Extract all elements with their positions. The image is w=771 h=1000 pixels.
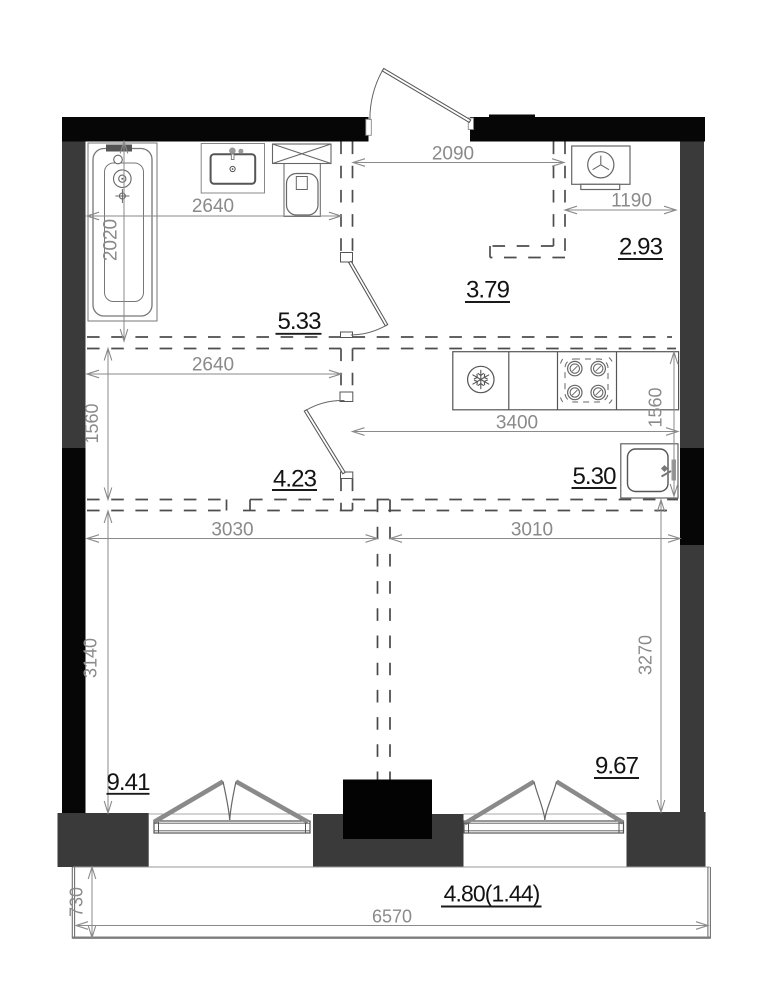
svg-text:9.67: 9.67 [595, 753, 639, 780]
svg-text:3400: 3400 [496, 413, 538, 434]
svg-text:2020: 2020 [101, 219, 122, 261]
svg-text:2640: 2640 [192, 355, 234, 376]
svg-text:9.41: 9.41 [106, 769, 150, 796]
svg-text:6570: 6570 [372, 907, 412, 927]
svg-text:1560: 1560 [82, 403, 102, 443]
svg-text:5.30: 5.30 [572, 463, 616, 490]
svg-text:3140: 3140 [81, 638, 101, 678]
svg-text:1560: 1560 [646, 387, 666, 427]
svg-text:3270: 3270 [636, 635, 656, 675]
svg-text:2.93: 2.93 [619, 234, 663, 261]
svg-text:2090: 2090 [432, 144, 474, 165]
svg-text:5.33: 5.33 [277, 308, 321, 335]
svg-text:4.80(1.44): 4.80(1.44) [444, 881, 540, 907]
svg-text:2640: 2640 [192, 196, 234, 217]
svg-text:3010: 3010 [511, 520, 553, 541]
svg-text:1190: 1190 [611, 191, 652, 212]
svg-text:3030: 3030 [211, 520, 253, 541]
svg-text:3.79: 3.79 [466, 277, 510, 304]
svg-text:730: 730 [67, 887, 87, 917]
svg-text:4.23: 4.23 [273, 466, 317, 493]
